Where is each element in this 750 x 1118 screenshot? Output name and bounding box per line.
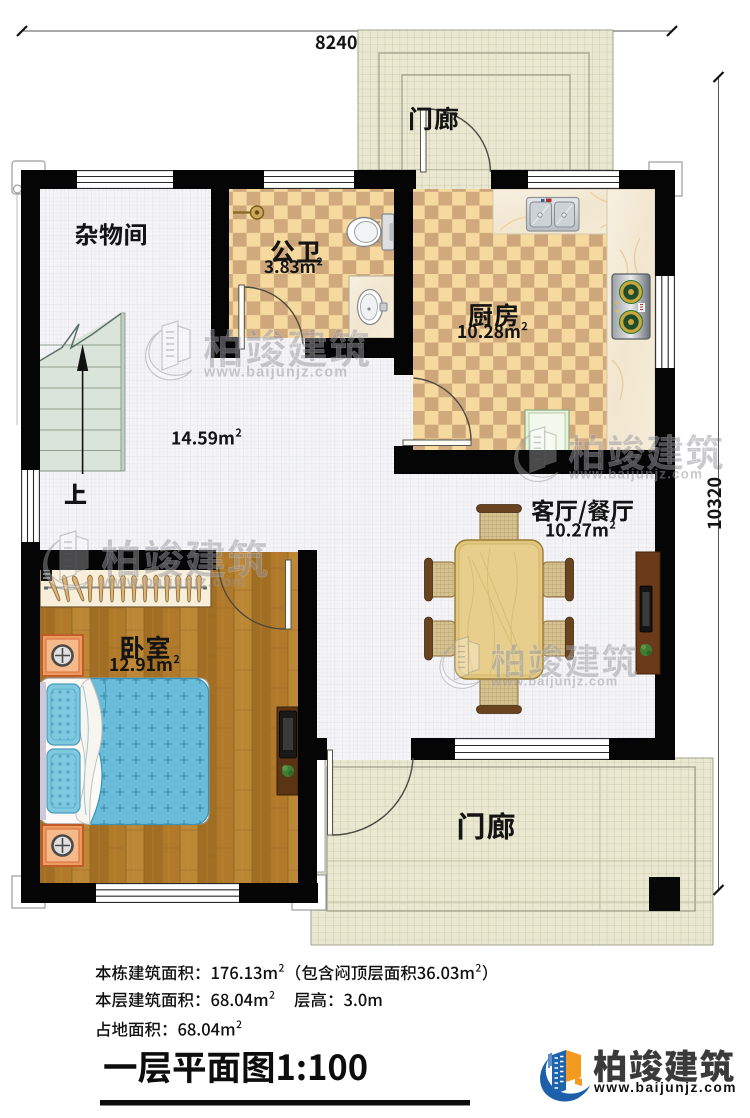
svg-text:www.baijunjz.com: www.baijunjz.com xyxy=(568,466,703,481)
svg-text:www.baijunjz.com: www.baijunjz.com xyxy=(203,365,348,381)
svg-text:www.baijunjz.com: www.baijunjz.com xyxy=(593,1080,737,1095)
svg-text:www.baijunjz.com: www.baijunjz.com xyxy=(490,673,618,688)
svg-text:www.baijunjz.com: www.baijunjz.com xyxy=(101,575,246,591)
